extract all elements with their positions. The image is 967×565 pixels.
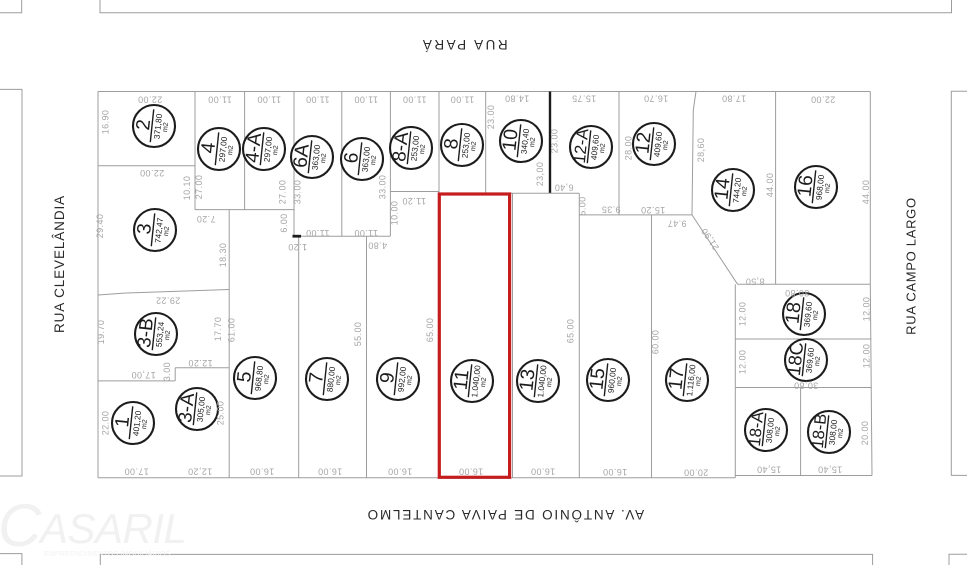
svg-text:m2: m2 xyxy=(616,376,624,387)
svg-text:m2: m2 xyxy=(335,375,343,386)
svg-text:m2: m2 xyxy=(695,376,703,387)
svg-text:20.00: 20.00 xyxy=(860,421,870,446)
svg-text:17.80: 17.80 xyxy=(722,94,747,104)
svg-text:30.80: 30.80 xyxy=(785,288,810,298)
svg-text:30,80: 30,80 xyxy=(794,381,819,391)
svg-text:m2: m2 xyxy=(774,426,782,437)
svg-text:m2: m2 xyxy=(164,330,172,341)
svg-text:33.00: 33.00 xyxy=(378,175,388,200)
svg-text:28.00: 28.00 xyxy=(624,136,634,161)
svg-text:RUA CAMPO LARGO: RUA CAMPO LARGO xyxy=(904,197,919,335)
svg-text:27.00: 27.00 xyxy=(194,175,204,200)
svg-text:22.00: 22.00 xyxy=(140,168,165,178)
svg-text:44.00: 44.00 xyxy=(861,180,871,205)
svg-text:1.20: 1.20 xyxy=(288,242,307,252)
svg-text:60.00: 60.00 xyxy=(651,330,661,355)
svg-text:9.35: 9.35 xyxy=(601,205,620,215)
svg-text:23.00: 23.00 xyxy=(486,105,496,130)
svg-text:28,60: 28,60 xyxy=(696,138,706,163)
svg-text:ASARIL: ASARIL xyxy=(37,505,186,552)
svg-text:RUA PARÁ: RUA PARÁ xyxy=(420,37,507,52)
svg-text:15,40: 15,40 xyxy=(757,465,782,475)
svg-text:11.20: 11.20 xyxy=(402,196,426,206)
svg-text:m2: m2 xyxy=(141,419,149,430)
svg-text:16.00: 16.00 xyxy=(531,467,556,477)
svg-text:11.00: 11.00 xyxy=(208,94,232,104)
svg-text:17,00: 17,00 xyxy=(131,370,156,380)
svg-text:25.00: 25.00 xyxy=(216,401,226,426)
svg-text:EMPREENDIMENTOS IMOBILIÁRIOS: EMPREENDIMENTOS IMOBILIÁRIOS xyxy=(44,549,171,558)
svg-text:6,40: 6,40 xyxy=(554,183,573,193)
svg-text:65.00: 65.00 xyxy=(425,318,435,343)
svg-text:16.00: 16.00 xyxy=(250,467,275,477)
svg-text:29.40: 29.40 xyxy=(95,214,105,239)
svg-text:33.00: 33.00 xyxy=(293,180,303,205)
svg-text:18.30: 18.30 xyxy=(218,243,228,268)
svg-text:17.70: 17.70 xyxy=(213,317,223,342)
svg-text:m2: m2 xyxy=(470,141,478,152)
svg-text:22.00: 22.00 xyxy=(811,94,836,104)
svg-text:AV. ANTÔNIO DE PAIVA CANTE: AV. ANTÔNIO DE PAIVA CANTELMO xyxy=(366,507,644,522)
svg-text:27.00: 27.00 xyxy=(278,180,288,205)
svg-text:m2: m2 xyxy=(272,145,280,156)
svg-text:23.00: 23.00 xyxy=(550,129,560,154)
svg-text:65.00: 65.00 xyxy=(566,319,576,344)
svg-text:m2: m2 xyxy=(546,377,554,388)
svg-text:12.00: 12.00 xyxy=(862,297,872,322)
svg-text:61.00: 61.00 xyxy=(227,318,237,343)
svg-text:m2: m2 xyxy=(741,186,749,197)
svg-text:16.00: 16.00 xyxy=(603,467,628,477)
svg-text:4.80: 4.80 xyxy=(368,241,387,251)
svg-text:m2: m2 xyxy=(162,122,170,133)
svg-text:m2: m2 xyxy=(227,145,235,156)
svg-text:10.00: 10.00 xyxy=(390,201,400,226)
svg-text:m2: m2 xyxy=(263,374,271,385)
svg-text:m2: m2 xyxy=(599,143,607,154)
svg-text:11.00: 11.00 xyxy=(354,94,378,104)
svg-text:11.00: 11.00 xyxy=(354,228,378,238)
svg-text:5.00: 5.00 xyxy=(578,196,588,215)
svg-text:19.70: 19.70 xyxy=(96,320,106,345)
svg-text:m2: m2 xyxy=(480,377,488,388)
svg-text:11.00: 11.00 xyxy=(403,94,427,104)
svg-text:16.00: 16.00 xyxy=(388,467,413,477)
svg-text:m2: m2 xyxy=(163,226,171,237)
svg-text:11.00: 11.00 xyxy=(306,94,330,104)
svg-text:23,00: 23,00 xyxy=(535,162,545,187)
svg-text:8,50: 8,50 xyxy=(745,277,764,287)
svg-text:m2: m2 xyxy=(824,183,832,194)
svg-text:12.20: 12.20 xyxy=(188,358,213,368)
svg-text:17.00: 17.00 xyxy=(124,467,149,477)
svg-text:16.70: 16.70 xyxy=(644,94,669,104)
svg-text:m2: m2 xyxy=(320,153,328,164)
svg-text:m2: m2 xyxy=(205,405,213,416)
svg-text:RUA CLEVELÂNDIA: RUA CLEVELÂNDIA xyxy=(52,195,67,333)
svg-text:m2: m2 xyxy=(837,428,845,439)
svg-text:15.75: 15.75 xyxy=(572,94,597,104)
svg-text:44.00: 44.00 xyxy=(765,173,775,198)
svg-text:m2: m2 xyxy=(406,375,414,386)
svg-text:3.00: 3.00 xyxy=(162,362,172,381)
svg-text:m2: m2 xyxy=(419,144,427,155)
svg-text:12.00: 12.00 xyxy=(738,350,748,375)
svg-text:11.00: 11.00 xyxy=(450,94,474,104)
svg-text:m2: m2 xyxy=(814,356,822,367)
svg-text:12.00: 12.00 xyxy=(738,302,748,327)
svg-text:16.00: 16.00 xyxy=(459,467,484,477)
svg-text:m2: m2 xyxy=(812,310,820,321)
svg-text:29.22: 29.22 xyxy=(156,296,181,306)
svg-text:15,40: 15,40 xyxy=(818,465,843,475)
svg-text:16.00: 16.00 xyxy=(318,467,343,477)
svg-text:11.00: 11.00 xyxy=(306,228,330,238)
svg-text:55.00: 55.00 xyxy=(353,322,363,347)
svg-text:15.20: 15.20 xyxy=(641,205,666,215)
svg-text:22.00: 22.00 xyxy=(138,94,163,104)
svg-text:m2: m2 xyxy=(662,140,670,151)
svg-text:20.00: 20.00 xyxy=(684,468,709,478)
svg-text:10.10: 10.10 xyxy=(182,176,192,201)
svg-text:6.00: 6.00 xyxy=(279,213,289,232)
svg-text:11.00: 11.00 xyxy=(257,94,281,104)
svg-text:9.47: 9.47 xyxy=(667,219,686,229)
svg-text:12,20: 12,20 xyxy=(188,467,213,477)
svg-text:22.00: 22.00 xyxy=(101,411,111,436)
svg-text:C: C xyxy=(0,492,42,559)
svg-text:m2: m2 xyxy=(529,137,537,148)
svg-text:7.20: 7.20 xyxy=(196,214,215,224)
svg-text:12.00: 12.00 xyxy=(862,344,872,369)
svg-text:14.80: 14.80 xyxy=(505,94,530,104)
svg-text:m2: m2 xyxy=(370,155,378,166)
svg-text:16.90: 16.90 xyxy=(101,110,111,135)
